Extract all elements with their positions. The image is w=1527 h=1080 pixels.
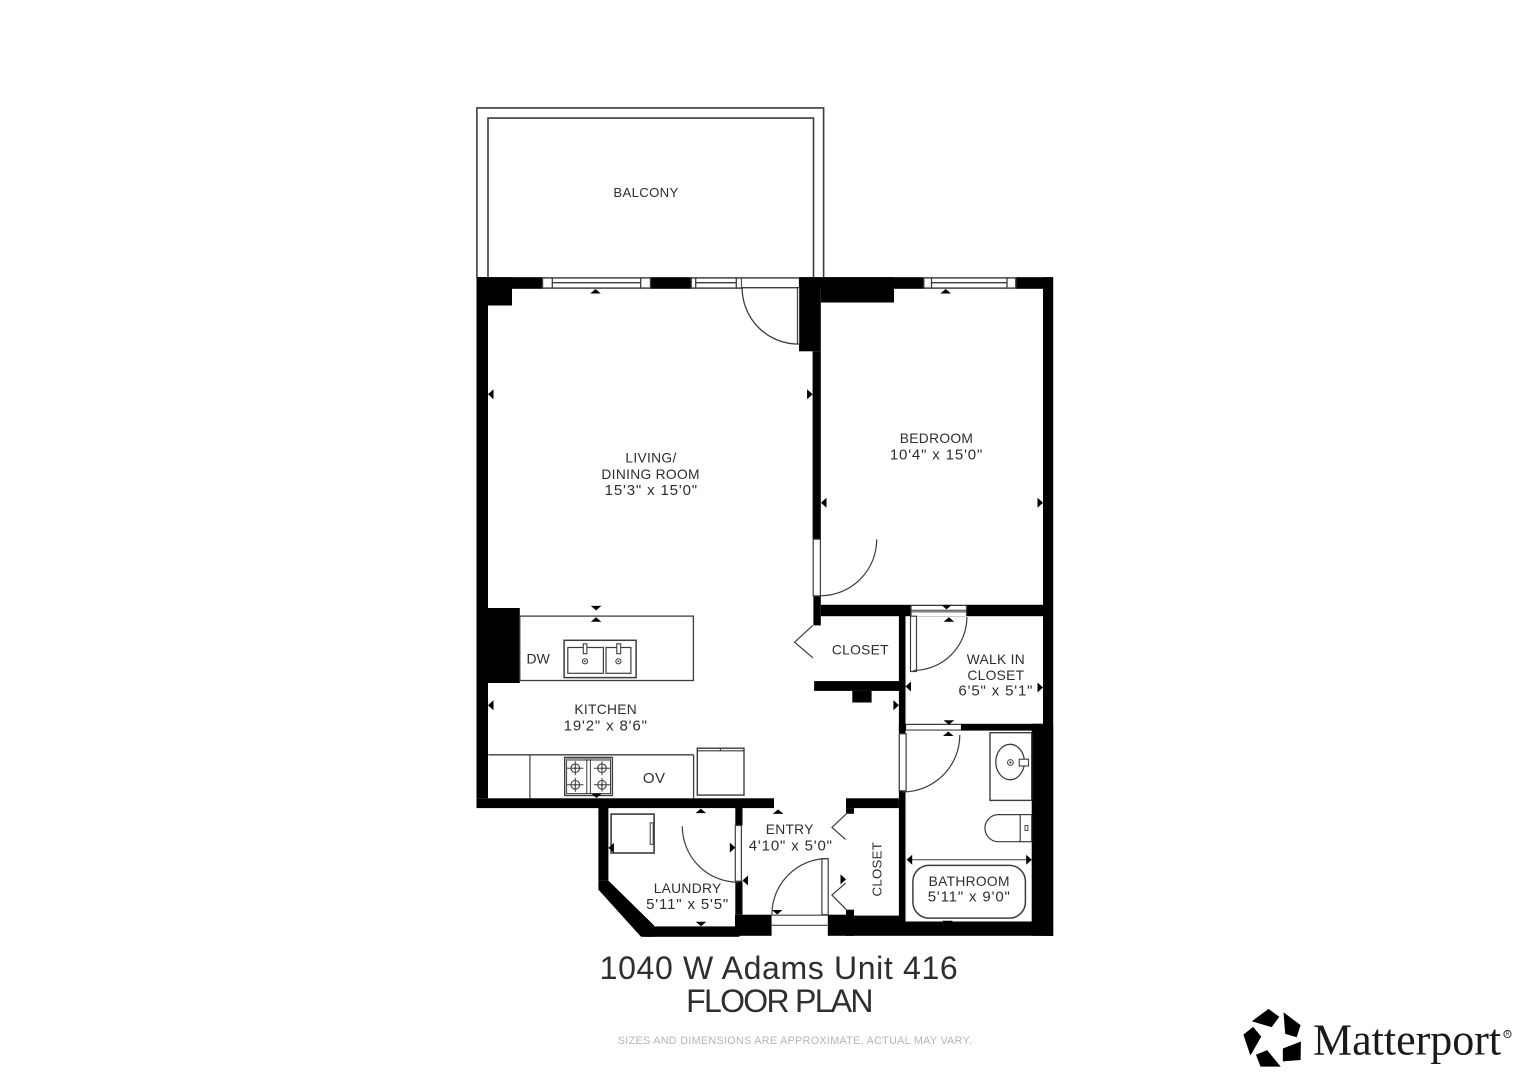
svg-text:Matterport: Matterport <box>1313 1016 1501 1065</box>
svg-text:KITCHEN: KITCHEN <box>574 702 637 717</box>
svg-text:BATHROOM: BATHROOM <box>929 874 1010 889</box>
svg-text:CLOSET: CLOSET <box>832 643 889 658</box>
svg-text:OV: OV <box>643 770 666 787</box>
svg-text:BALCONY: BALCONY <box>613 185 678 200</box>
svg-text:LIVING/: LIVING/ <box>625 451 676 466</box>
svg-text:ENTRY: ENTRY <box>766 822 814 837</box>
svg-text:5'11" x 5'5": 5'11" x 5'5" <box>646 896 729 913</box>
svg-text:5'11" x 9'0": 5'11" x 9'0" <box>928 888 1011 905</box>
svg-text:SIZES AND DIMENSIONS ARE APPRO: SIZES AND DIMENSIONS ARE APPROXIMATE, AC… <box>618 1035 972 1047</box>
svg-text:10'4" x 15'0": 10'4" x 15'0" <box>890 447 983 464</box>
svg-text:6'5" x 5'1": 6'5" x 5'1" <box>958 682 1033 699</box>
svg-text:WALK IN: WALK IN <box>967 652 1025 667</box>
svg-text:LAUNDRY: LAUNDRY <box>654 881 722 896</box>
svg-text:CLOSET: CLOSET <box>967 668 1024 683</box>
svg-text:15'3" x 15'0": 15'3" x 15'0" <box>605 482 698 499</box>
svg-text:4'10" x 5'0": 4'10" x 5'0" <box>749 837 833 854</box>
svg-text:19'2" x 8'6": 19'2" x 8'6" <box>564 717 648 734</box>
svg-text:DINING ROOM: DINING ROOM <box>601 467 699 482</box>
svg-text:R: R <box>1506 1031 1510 1037</box>
svg-text:1040 W Adams Unit 416: 1040 W Adams Unit 416 <box>600 950 959 986</box>
svg-text:FLOOR PLAN: FLOOR PLAN <box>686 983 872 1019</box>
svg-text:DW: DW <box>527 651 551 667</box>
svg-text:BEDROOM: BEDROOM <box>900 431 973 446</box>
svg-text:CLOSET: CLOSET <box>869 842 884 897</box>
